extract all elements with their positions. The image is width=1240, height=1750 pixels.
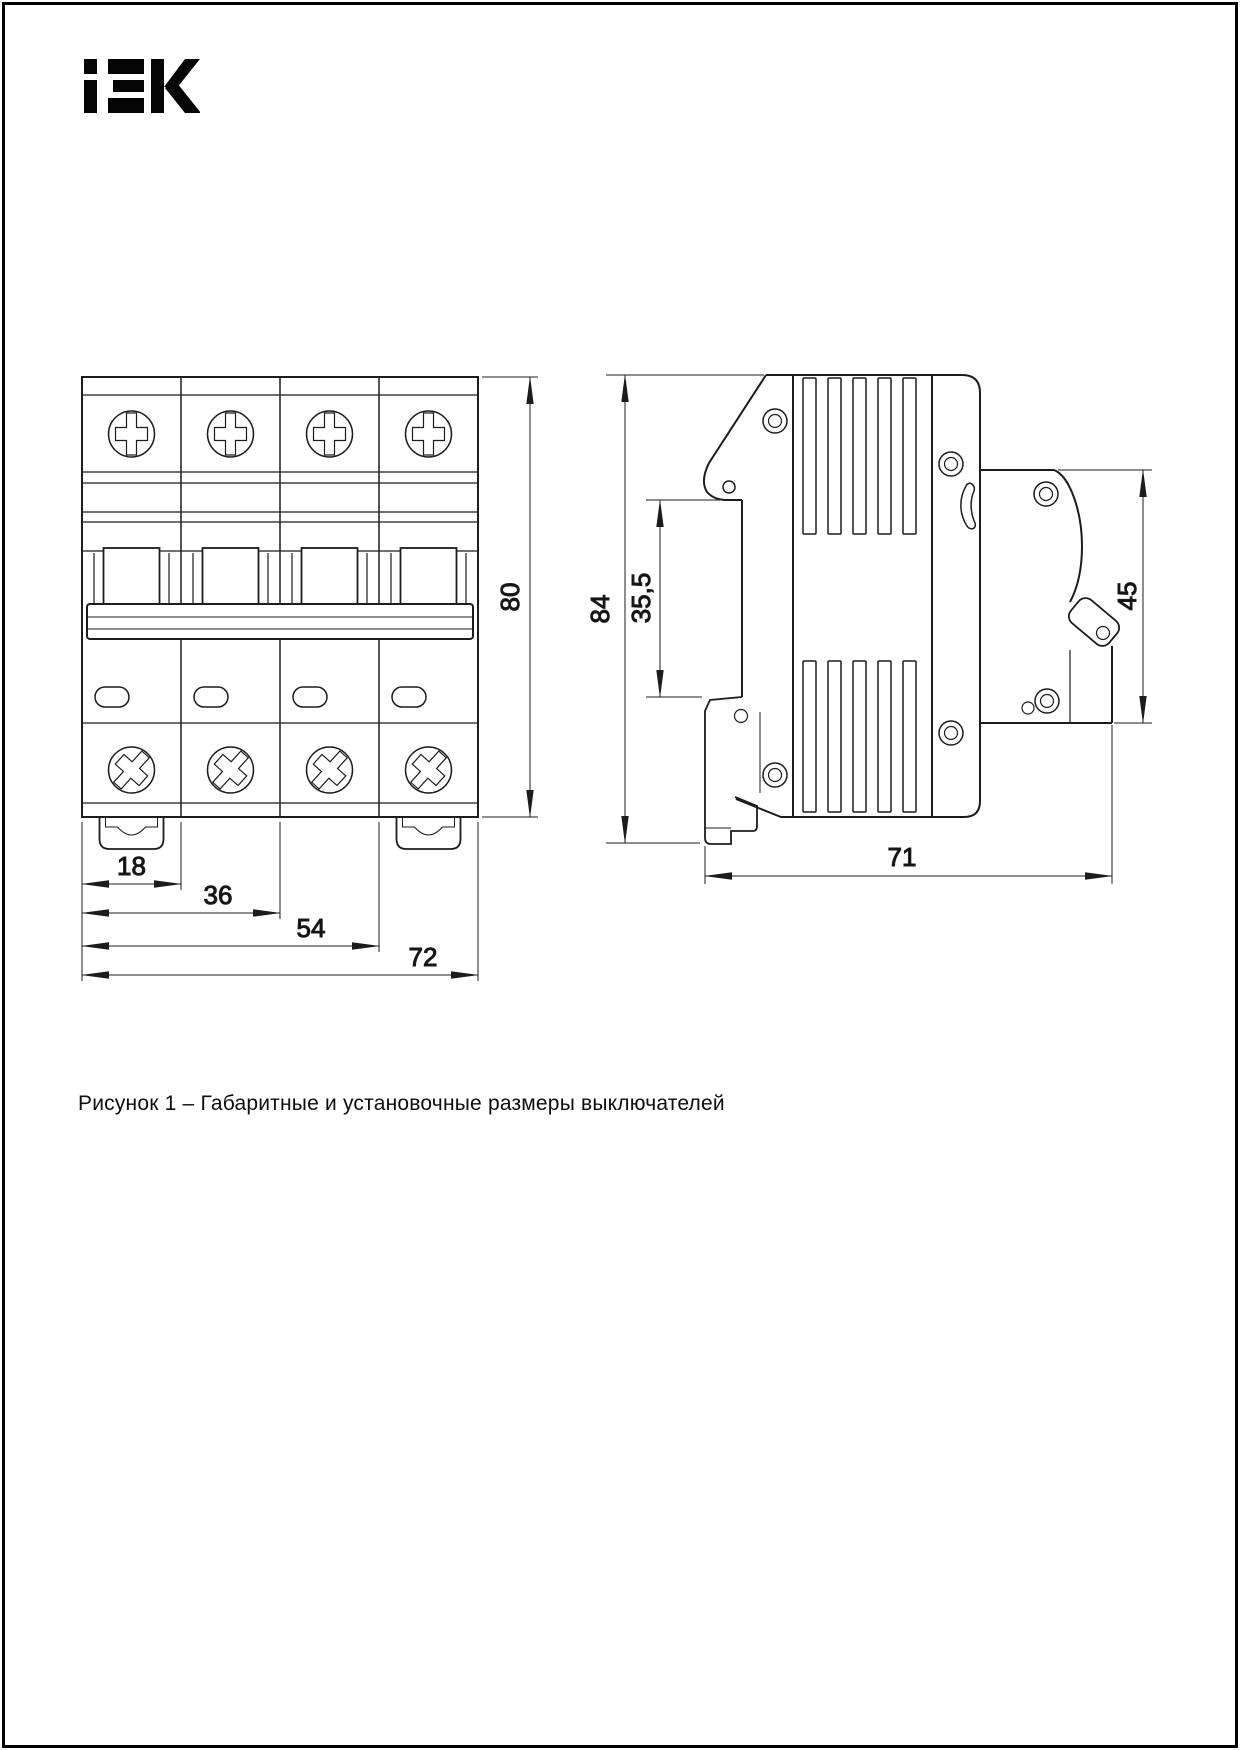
lower-vent-ribs <box>803 661 916 812</box>
dim-label-three-modules: 54 <box>297 913 326 943</box>
label-windows <box>95 687 426 707</box>
side-height-dimension: 84 <box>585 375 764 843</box>
dim-label-total-depth: 71 <box>888 842 917 872</box>
dim-label-total-height: 84 <box>585 595 615 624</box>
din-clip-right <box>397 817 461 849</box>
front-width-dimensions: 18 36 54 72 <box>82 822 478 981</box>
side-top-edge <box>766 375 980 393</box>
depth-dimension: 71 <box>705 725 1112 884</box>
recess-hook-hole <box>723 481 735 493</box>
rib-zone-edges <box>793 375 932 816</box>
dim-label-total-width: 72 <box>409 942 438 972</box>
rivets <box>763 409 1059 787</box>
dim-label-height: 80 <box>495 583 525 612</box>
front-face <box>704 375 766 500</box>
upper-vent-ribs <box>803 378 916 534</box>
dim-label-upper-depth: 45 <box>1112 582 1142 611</box>
datasheet-page: 18 36 54 72 80 <box>0 0 1240 1750</box>
dim-label-two-modules: 36 <box>204 880 233 910</box>
front-view: 18 36 54 72 80 <box>82 377 538 981</box>
rail-recess-dimension: 35,5 <box>626 500 720 697</box>
upper-terminal-profile <box>980 470 1082 602</box>
side-view: 84 35,5 45 71 <box>585 375 1152 884</box>
side-right-bottom-edge <box>736 393 980 817</box>
figure-caption: Рисунок 1 – Габаритные и установочные ра… <box>78 1092 725 1116</box>
tie-bar <box>87 604 473 639</box>
dim-label-module-width: 18 <box>117 851 146 881</box>
din-clip-left <box>100 817 164 849</box>
front-height-dimension: 80 <box>482 377 538 817</box>
dimension-drawing: 18 36 54 72 80 <box>0 0 1240 1750</box>
rail-clip <box>705 697 760 844</box>
curved-slot <box>961 483 975 529</box>
dim-label-rail-recess: 35,5 <box>626 573 656 624</box>
